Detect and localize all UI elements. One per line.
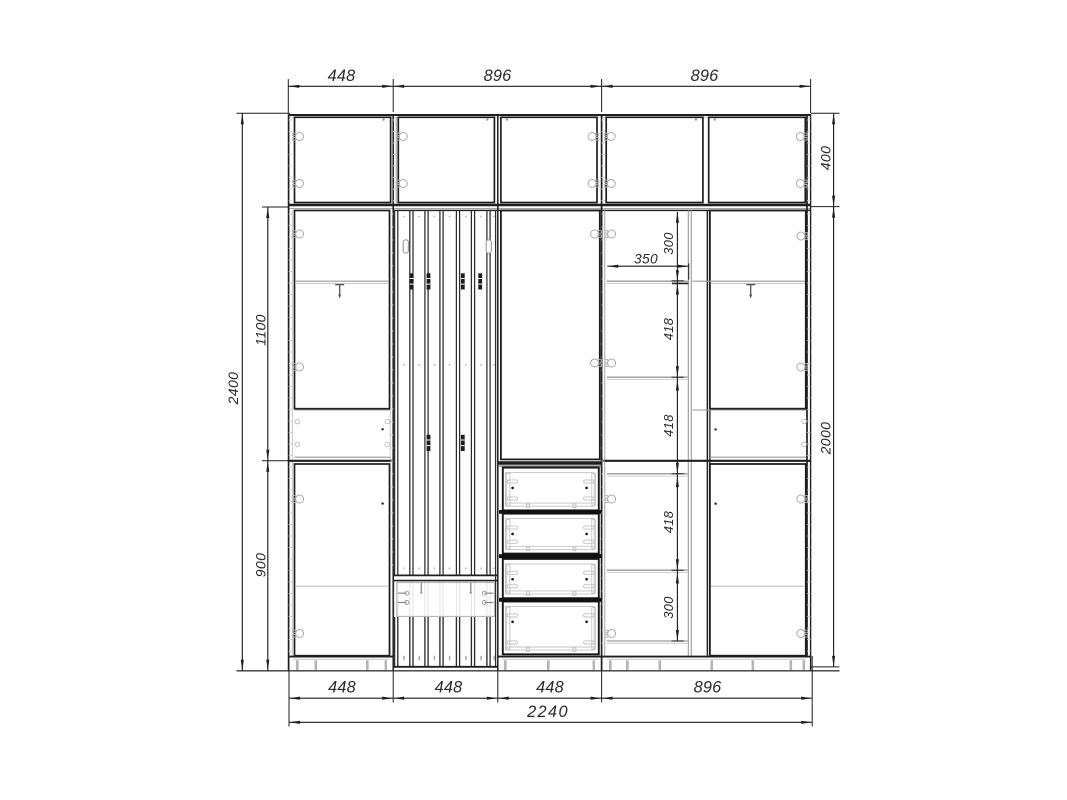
svg-text:448: 448 xyxy=(435,679,463,697)
svg-text:1100: 1100 xyxy=(253,314,269,346)
svg-text:448: 448 xyxy=(328,679,356,697)
svg-text:2000: 2000 xyxy=(818,422,834,456)
svg-text:896: 896 xyxy=(694,679,723,697)
svg-text:2400: 2400 xyxy=(225,372,241,406)
svg-text:418: 418 xyxy=(661,317,676,340)
svg-text:418: 418 xyxy=(661,414,676,437)
svg-text:896: 896 xyxy=(484,67,513,85)
svg-text:900: 900 xyxy=(253,553,269,578)
svg-text:2240: 2240 xyxy=(526,703,569,721)
svg-text:400: 400 xyxy=(818,146,834,171)
svg-text:896: 896 xyxy=(691,67,720,85)
svg-text:448: 448 xyxy=(536,679,564,697)
svg-text:300: 300 xyxy=(661,596,676,619)
svg-text:350: 350 xyxy=(634,252,658,267)
svg-text:448: 448 xyxy=(328,67,356,85)
svg-text:418: 418 xyxy=(661,510,676,533)
svg-text:300: 300 xyxy=(661,232,676,255)
